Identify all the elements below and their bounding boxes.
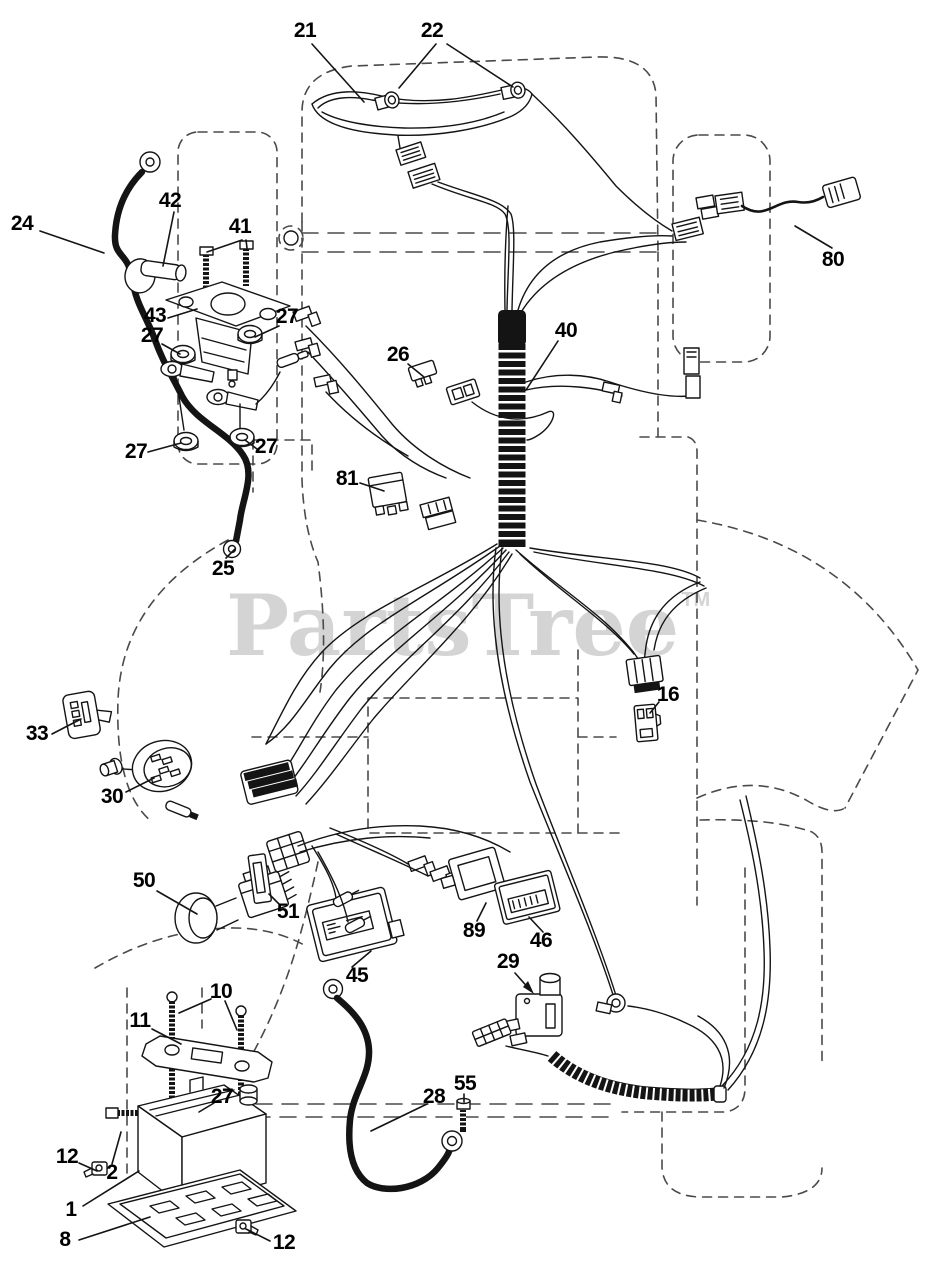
harness-connector [672,217,703,240]
steering-bushing [284,231,298,245]
battery-tray-8 [108,1170,296,1247]
diagram-line-art [0,0,925,1280]
hex-nut-27 [171,346,195,364]
headlight-switch-50 [175,860,299,943]
hood-rear-edge [302,222,324,692]
frame-connector [684,348,700,398]
harness-end-connector [626,655,664,693]
relay-81 [368,472,456,530]
ring-terminal [324,980,343,999]
hex-nut-27 [238,326,262,344]
hood-outline [302,57,658,252]
wiring [62,81,861,1247]
headlight-bulb [501,81,527,101]
fuel-solenoid-29 [503,974,562,1046]
steering-bushing-outline [279,226,303,250]
harness-connector [396,142,426,165]
mounting-bolts-41 [200,241,253,290]
key-cover-33 [62,688,115,739]
right-frame-bottom [662,1112,822,1197]
right-fender-top [697,520,918,808]
hex-nut-27 [174,433,198,451]
right-fender-lower [700,820,822,1062]
ring-terminal [442,1131,462,1151]
headlight-bulb [374,90,400,111]
ground-cable-28 [324,980,463,1189]
jumper-wire-80 [715,177,861,214]
right-panel-outline [673,135,770,362]
center-wires [493,548,706,1002]
connector-wires [298,826,510,852]
battery-bracket-11 [142,1036,272,1082]
connector-16 [634,704,662,742]
flag-terminal [600,382,623,403]
mid-rect-stubs [252,650,620,833]
fuse-26 [408,360,554,440]
ground-coil-wire [472,796,770,1102]
bullet-terminal [165,800,200,821]
frame-rail-top [302,233,658,252]
ring-terminal [224,541,241,558]
harness-conduit-40 [498,206,700,547]
small-box-outline [253,440,312,492]
parts-diagram: PartsTreeTM [0,0,925,1280]
right-frame-lower [622,868,745,1112]
bolt-55 [457,1099,470,1133]
harness-connector [408,163,440,188]
right-fender-hump [697,785,845,810]
fuel-gauge-46 [494,870,560,925]
switch-connector [240,759,300,805]
ignition-switch-30 [97,733,299,821]
